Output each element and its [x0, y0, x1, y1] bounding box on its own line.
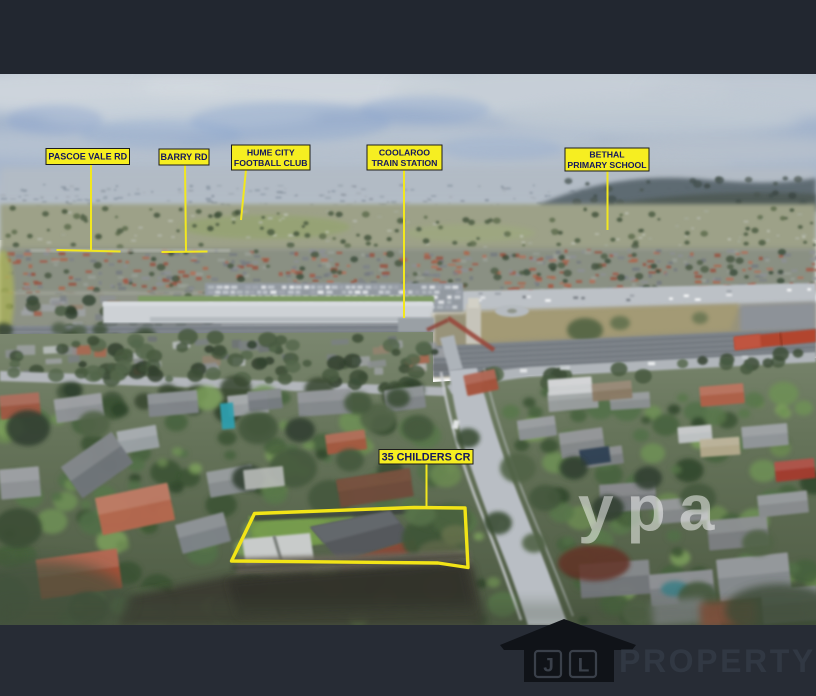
svg-text:J: J [543, 656, 554, 677]
svg-text:FOOTBALL CLUB: FOOTBALL CLUB [234, 158, 308, 168]
svg-text:BARRY RD: BARRY RD [160, 152, 208, 162]
svg-text:35 CHILDERS CR: 35 CHILDERS CR [382, 452, 471, 464]
svg-text:HUME CITY: HUME CITY [247, 147, 295, 157]
svg-text:PRIMARY SCHOOL: PRIMARY SCHOOL [567, 160, 647, 170]
svg-text:TRAIN STATION: TRAIN STATION [372, 158, 438, 168]
svg-text:L: L [578, 656, 590, 677]
svg-text:PROPERTY: PROPERTY [619, 643, 816, 679]
svg-text:PASCOE VALE RD: PASCOE VALE RD [48, 152, 127, 162]
svg-text:ypa: ypa [578, 472, 727, 544]
svg-text:BETHAL: BETHAL [589, 149, 625, 159]
svg-text:COOLAROO: COOLAROO [379, 147, 430, 157]
